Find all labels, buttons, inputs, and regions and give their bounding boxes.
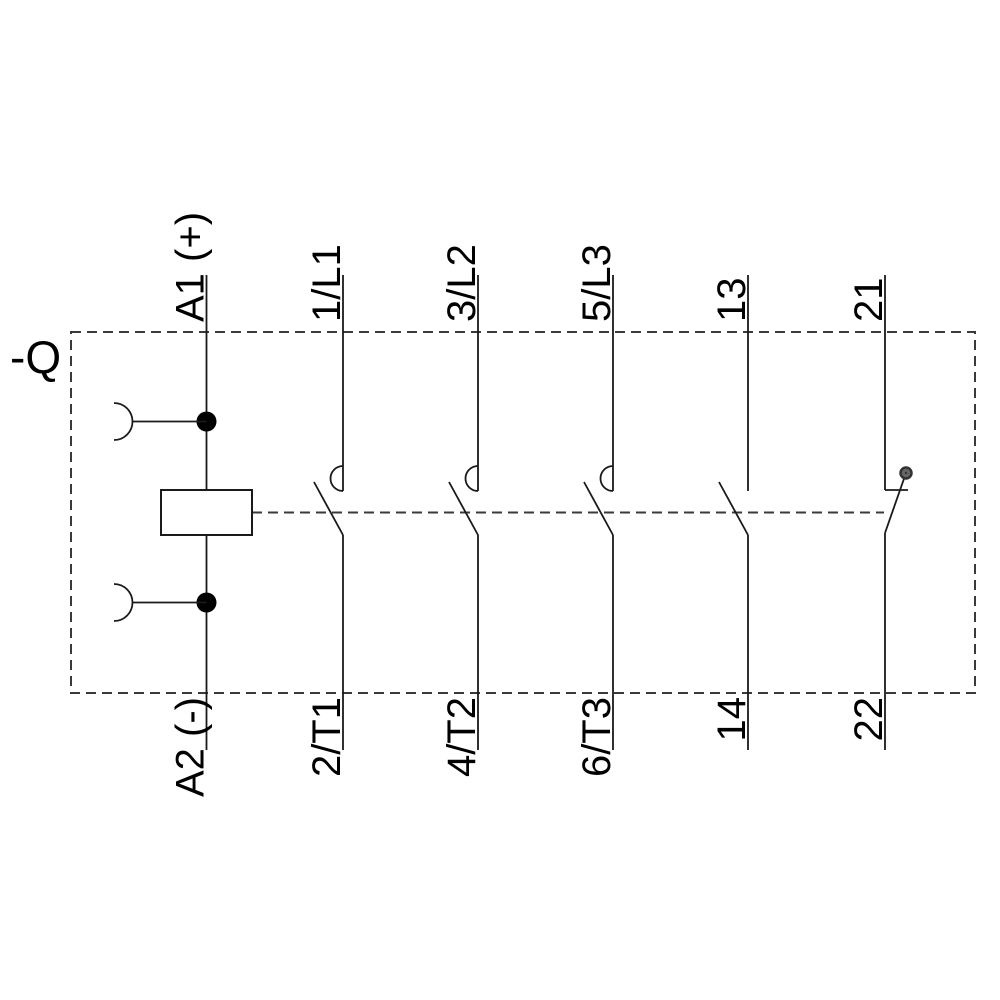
terminal-label-6t3: 6/T3 xyxy=(575,697,619,777)
terminal-label-2t1: 2/T1 xyxy=(305,697,349,777)
main-pole-1: 1/L1 2/T1 xyxy=(305,244,349,777)
clamp-terminal-arc-top xyxy=(114,403,133,440)
clamp-terminal-arc-bottom xyxy=(114,584,133,621)
schematic-svg: -Q A1 (+) A2 (-) 1/L1 2/T1 xyxy=(0,0,1000,1000)
terminal-label-a1: A1 (+) xyxy=(169,212,213,322)
pole2-fixed-contact-arc xyxy=(465,466,478,491)
main-pole-3: 5/L3 6/T3 xyxy=(575,244,619,777)
terminal-label-21: 21 xyxy=(847,278,891,323)
terminal-label-22: 22 xyxy=(847,697,891,742)
terminal-label-4t2: 4/T2 xyxy=(440,697,484,777)
terminal-label-1l1: 1/L1 xyxy=(305,244,349,322)
terminal-label-5l3: 5/L3 xyxy=(575,244,619,322)
terminal-label-14: 14 xyxy=(710,697,754,742)
aux-nc-pivot-center-dot xyxy=(905,472,907,474)
aux-no-contact-blade xyxy=(719,482,748,535)
contactor-wiring-diagram: -Q A1 (+) A2 (-) 1/L1 2/T1 xyxy=(0,0,1000,1000)
terminal-label-a2: A2 (-) xyxy=(169,697,213,797)
coil-branch: A1 (+) A2 (-) xyxy=(114,212,252,797)
pole3-fixed-contact-arc xyxy=(600,466,613,491)
device-designation-label: -Q xyxy=(10,331,61,383)
pole1-fixed-contact-arc xyxy=(330,466,343,491)
terminal-label-13: 13 xyxy=(710,278,754,323)
coil-symbol xyxy=(161,490,252,535)
aux-nc-contact-blade xyxy=(885,473,906,533)
terminal-label-3l2: 3/L2 xyxy=(440,244,484,322)
main-pole-2: 3/L2 4/T2 xyxy=(440,244,484,777)
